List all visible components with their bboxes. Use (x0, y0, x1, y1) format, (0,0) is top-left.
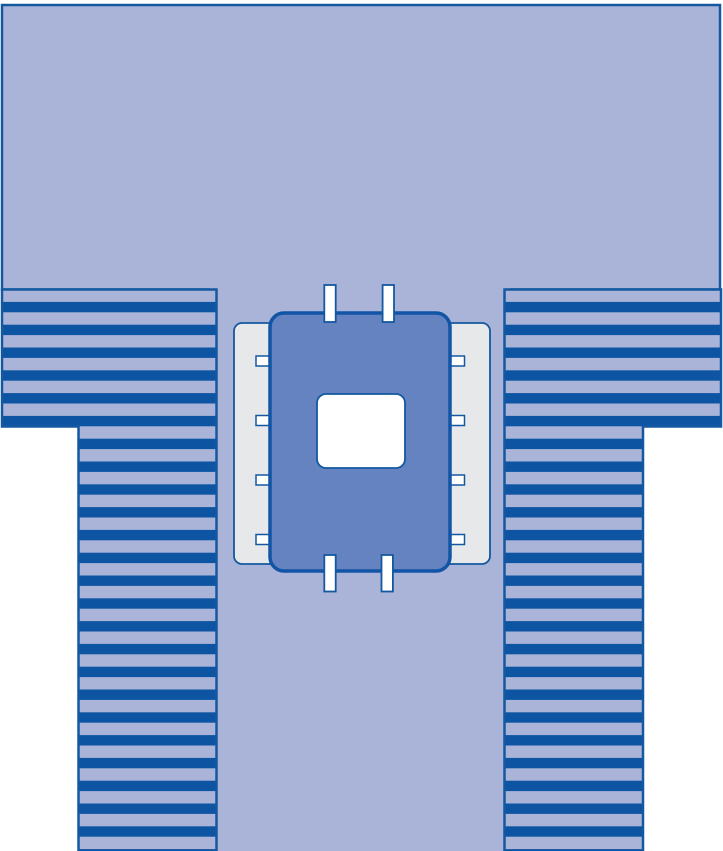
drape-figure (0, 0, 723, 851)
drape-illustration (0, 0, 723, 851)
drape-top-body (2, 5, 720, 290)
top-tab-left (324, 285, 335, 322)
bottom-tab-left (324, 555, 335, 592)
fenestration (317, 394, 405, 468)
bottom-tab-right (382, 555, 393, 592)
pleated-fold-left (2, 290, 217, 851)
top-tab-right (383, 285, 394, 322)
pleated-fold-right (505, 290, 722, 851)
